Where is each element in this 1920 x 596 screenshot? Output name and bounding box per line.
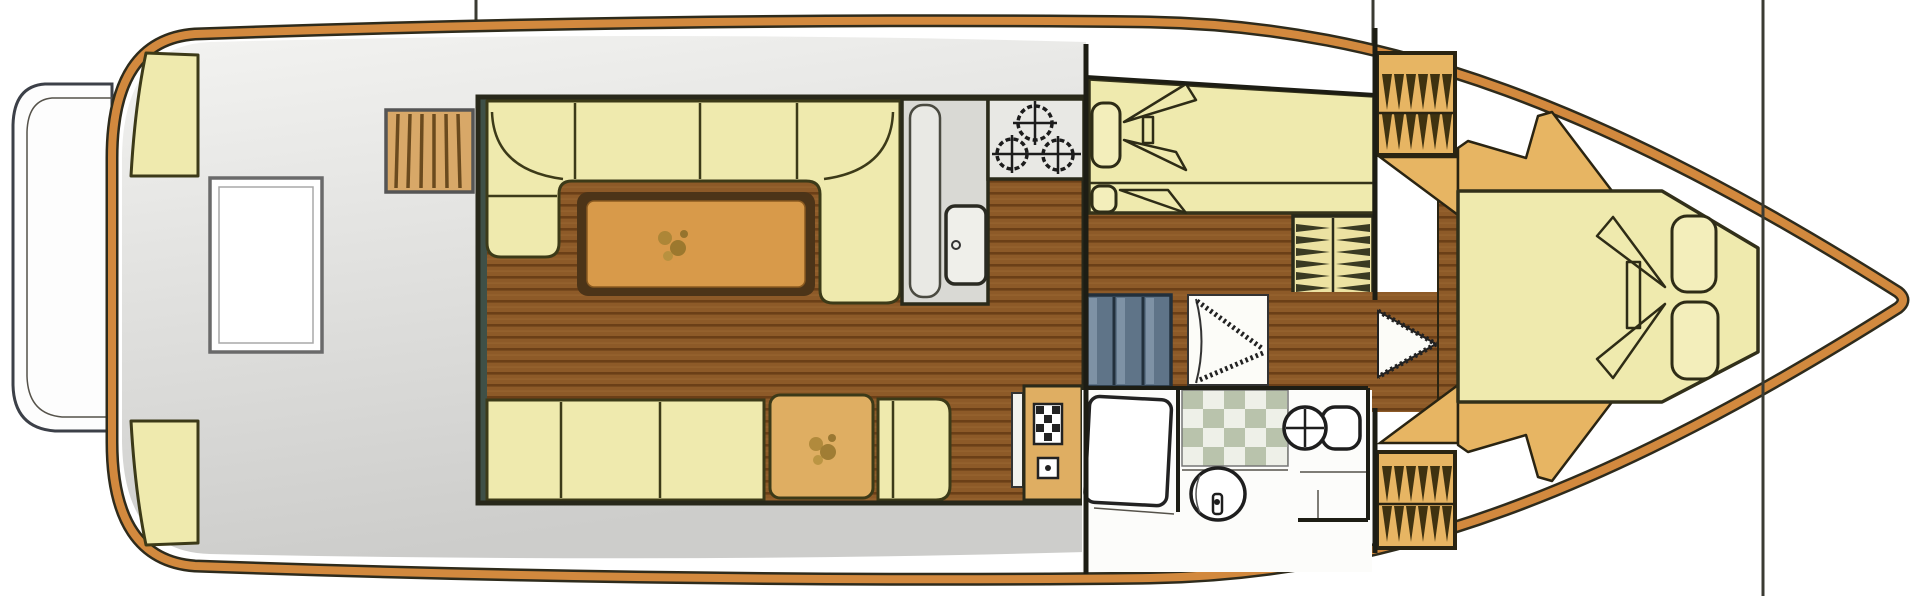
bifold-door <box>1188 295 1268 385</box>
pillow <box>1672 302 1718 379</box>
deck-hatch-bottom <box>1377 452 1455 548</box>
bathroom-tiles <box>1182 390 1288 466</box>
aft-seat-top <box>131 53 198 176</box>
pillow <box>1092 103 1120 167</box>
toilet <box>1284 407 1360 449</box>
boat-floor-plan <box>0 0 1920 596</box>
galley-slim-door <box>1012 393 1023 487</box>
deck-hatch-top <box>1377 53 1455 155</box>
aft-seat-bottom <box>131 421 198 545</box>
aft-side-steps <box>386 110 473 192</box>
floor-plan-canvas <box>0 0 1920 596</box>
salon-side-table <box>770 395 873 498</box>
swim-platform <box>13 84 112 431</box>
salon-corner-cushions <box>878 399 950 500</box>
washbasin <box>1191 468 1245 520</box>
bathroom <box>1082 387 1372 572</box>
louvered-wardrobe <box>1293 216 1373 298</box>
pillow <box>1672 216 1716 292</box>
deck-table <box>210 178 322 352</box>
bow-cabin-floor-strip <box>1438 190 1458 403</box>
galley-stove <box>988 99 1084 179</box>
salon-bench <box>487 400 764 500</box>
salon-table <box>577 192 815 296</box>
companionway-steps <box>1086 295 1171 387</box>
pillow <box>1092 186 1116 212</box>
galley-counter-board <box>910 105 940 297</box>
galley-cabinet <box>1024 386 1082 500</box>
bathroom-door <box>1084 396 1171 506</box>
